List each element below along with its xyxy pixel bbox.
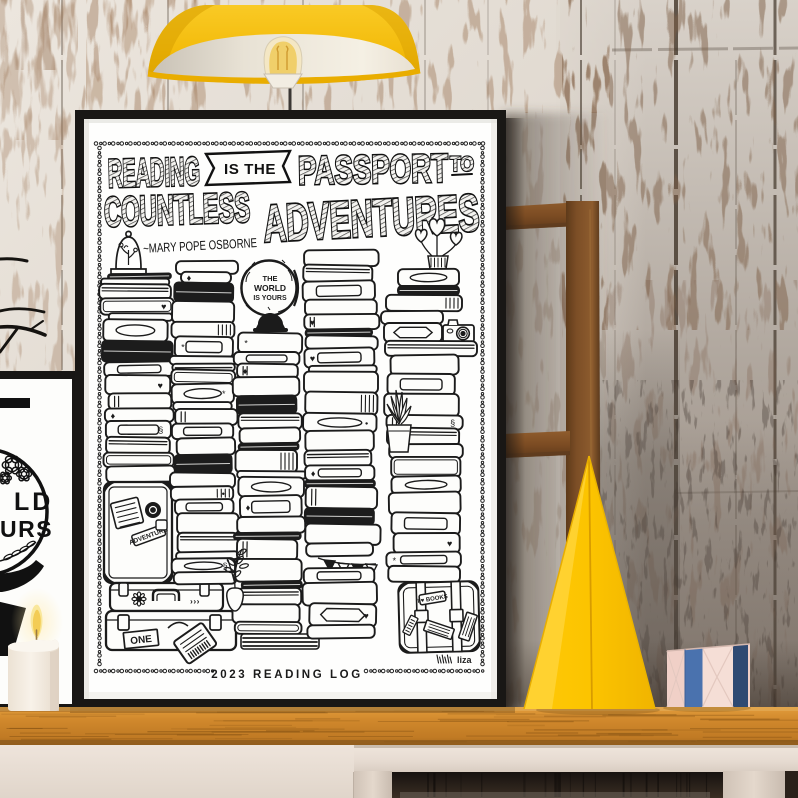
svg-text:›››: ›››	[190, 596, 200, 606]
svg-text:LD: LD	[14, 488, 53, 516]
svg-text:COUNTLESS: COUNTLESS	[103, 183, 251, 235]
svg-text:2023 READING LOG: 2023 READING LOG	[211, 669, 363, 681]
svg-text:♦: ♦	[111, 411, 116, 421]
svg-text:IS THE: IS THE	[224, 161, 276, 178]
svg-text:§: §	[158, 425, 163, 435]
svg-text:THE: THE	[263, 274, 278, 283]
svg-text:♥: ♥	[161, 302, 166, 312]
svg-text:*: *	[393, 556, 397, 566]
svg-text:ONE: ONE	[130, 634, 153, 647]
svg-text:♥: ♥	[363, 611, 369, 621]
svg-text:♥: ♥	[310, 354, 316, 364]
svg-text:WORLD: WORLD	[254, 283, 286, 293]
svg-text:*: *	[181, 342, 185, 352]
svg-text:♦: ♦	[311, 469, 316, 479]
svg-text:TO: TO	[450, 153, 474, 176]
svg-text:♥: ♥	[310, 318, 315, 328]
svg-text:URS: URS	[0, 516, 53, 542]
svg-text:IS YOURS: IS YOURS	[253, 295, 287, 302]
svg-text:♥: ♥	[157, 381, 162, 391]
svg-text:♦: ♦	[187, 273, 192, 283]
svg-text:•: •	[365, 418, 368, 428]
svg-text:♦: ♦	[243, 366, 248, 376]
svg-text:§: §	[450, 418, 455, 428]
svg-text:♦: ♦	[246, 503, 251, 513]
svg-text:•: •	[222, 489, 225, 499]
svg-text:♥: ♥	[447, 539, 452, 549]
svg-text:liza: liza	[457, 655, 473, 665]
svg-text:ADVENTURES: ADVENTURES	[262, 184, 481, 253]
